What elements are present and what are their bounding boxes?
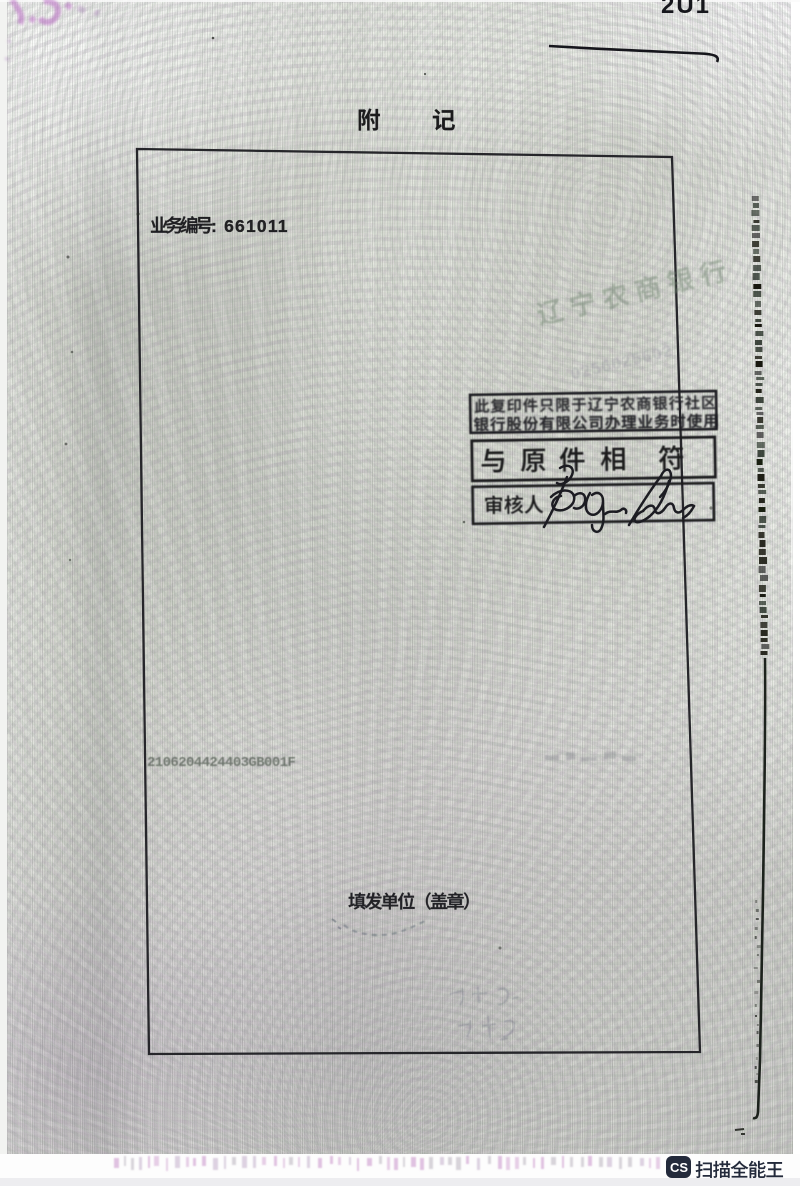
- svg-text:2U1: 2U1: [661, 0, 711, 19]
- svg-text:: 661011: : 661011: [211, 216, 289, 236]
- svg-text:0256025602: 0256025602: [569, 341, 675, 384]
- svg-text:2106204424403GB001F: 2106204424403GB001F: [147, 755, 295, 771]
- svg-text:CS: CS: [670, 1160, 688, 1175]
